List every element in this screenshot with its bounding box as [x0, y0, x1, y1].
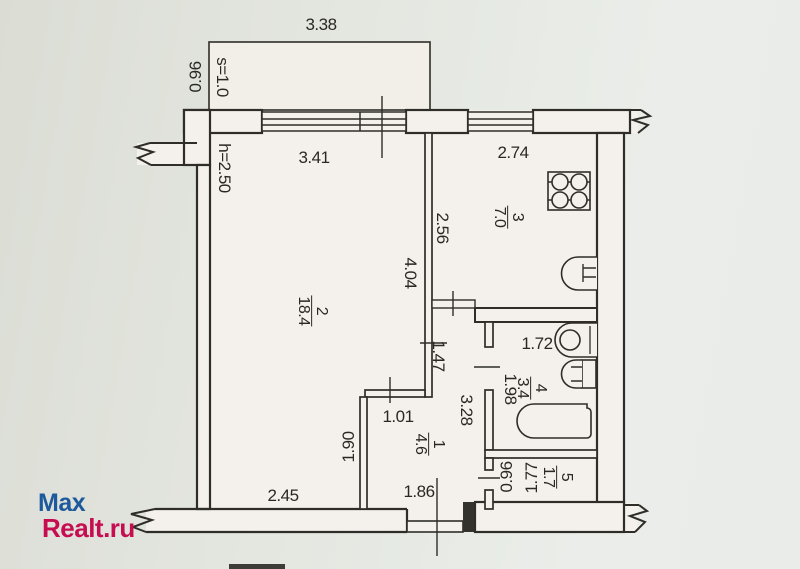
dim-room2-depth: 4.04 [400, 257, 420, 288]
room-label-storage: 5 1.7 [540, 466, 574, 489]
bathtub-icon [517, 404, 591, 438]
washbasin-icon [555, 323, 597, 357]
stove-icon [548, 172, 590, 210]
watermark-line2: Realt.ru [42, 515, 135, 541]
dim-bath-width: 1.72 [521, 334, 552, 354]
room-label-living: 2 18.4 [295, 295, 329, 326]
dim-hall-width: 1.86 [403, 482, 434, 502]
room-number: 5 [558, 466, 575, 489]
dim-room2-bottom-width: 2.45 [267, 486, 298, 506]
dim-room2-right-depth: 1.90 [339, 431, 359, 462]
room-number: 3 [509, 206, 526, 229]
windows [262, 112, 533, 131]
dim-storage-depth: 0.96 [497, 461, 517, 492]
dim-balcony-depth: 0.96 [186, 61, 206, 92]
room-area: 7.0 [491, 206, 509, 229]
room-number: 4 [532, 377, 549, 400]
dim-room2-width: 3.41 [298, 148, 329, 168]
room-number: 2 [313, 295, 330, 326]
toilet-icon [562, 360, 597, 388]
dim-ceiling-height: h=2.50 [214, 143, 234, 192]
room-area: 1.7 [540, 466, 558, 489]
entrance-pier [463, 502, 474, 532]
kitchen-sink-icon [562, 257, 598, 290]
room-label-bathroom: 4 3.4 [514, 377, 548, 400]
dim-kitchen-width: 2.74 [497, 143, 528, 163]
dim-partition-width: 1.01 [382, 407, 413, 427]
scan-artifact [229, 564, 285, 569]
room-label-kitchen: 3 7.0 [491, 206, 525, 229]
room-area: 18.4 [295, 295, 313, 326]
room-label-hall: 1 4.6 [412, 433, 446, 456]
dim-balcony-width: 3.38 [305, 15, 336, 35]
dim-balcony-s: s=1.0 [212, 57, 232, 97]
balcony-outline [209, 42, 430, 110]
dim-corridor-length: 1.47 [428, 340, 448, 371]
dim-kitchen-depth: 2.56 [432, 212, 452, 243]
room-area: 4.6 [412, 433, 430, 456]
floor-plan-scan: 3.38 s=1.0 0.96 h=2.50 3.41 2.74 2.56 4.… [0, 0, 800, 569]
room-number: 1 [430, 433, 447, 456]
dim-hall-depth: 3.28 [456, 394, 476, 425]
room-area: 3.4 [514, 377, 532, 400]
